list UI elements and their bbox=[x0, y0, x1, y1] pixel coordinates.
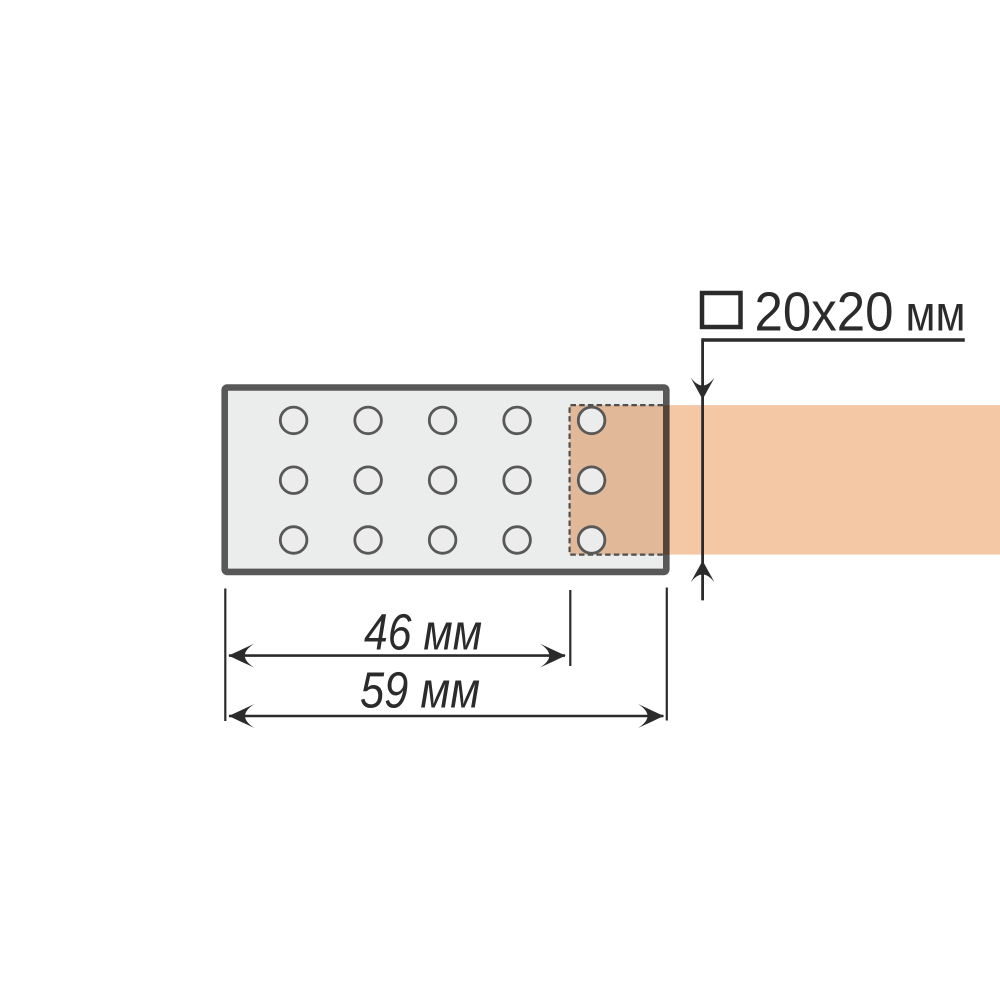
svg-text:46 мм: 46 мм bbox=[364, 603, 482, 660]
svg-text:мм: мм bbox=[906, 286, 966, 342]
svg-text:59 мм: 59 мм bbox=[360, 661, 480, 718]
svg-text:20x20: 20x20 bbox=[755, 281, 894, 343]
